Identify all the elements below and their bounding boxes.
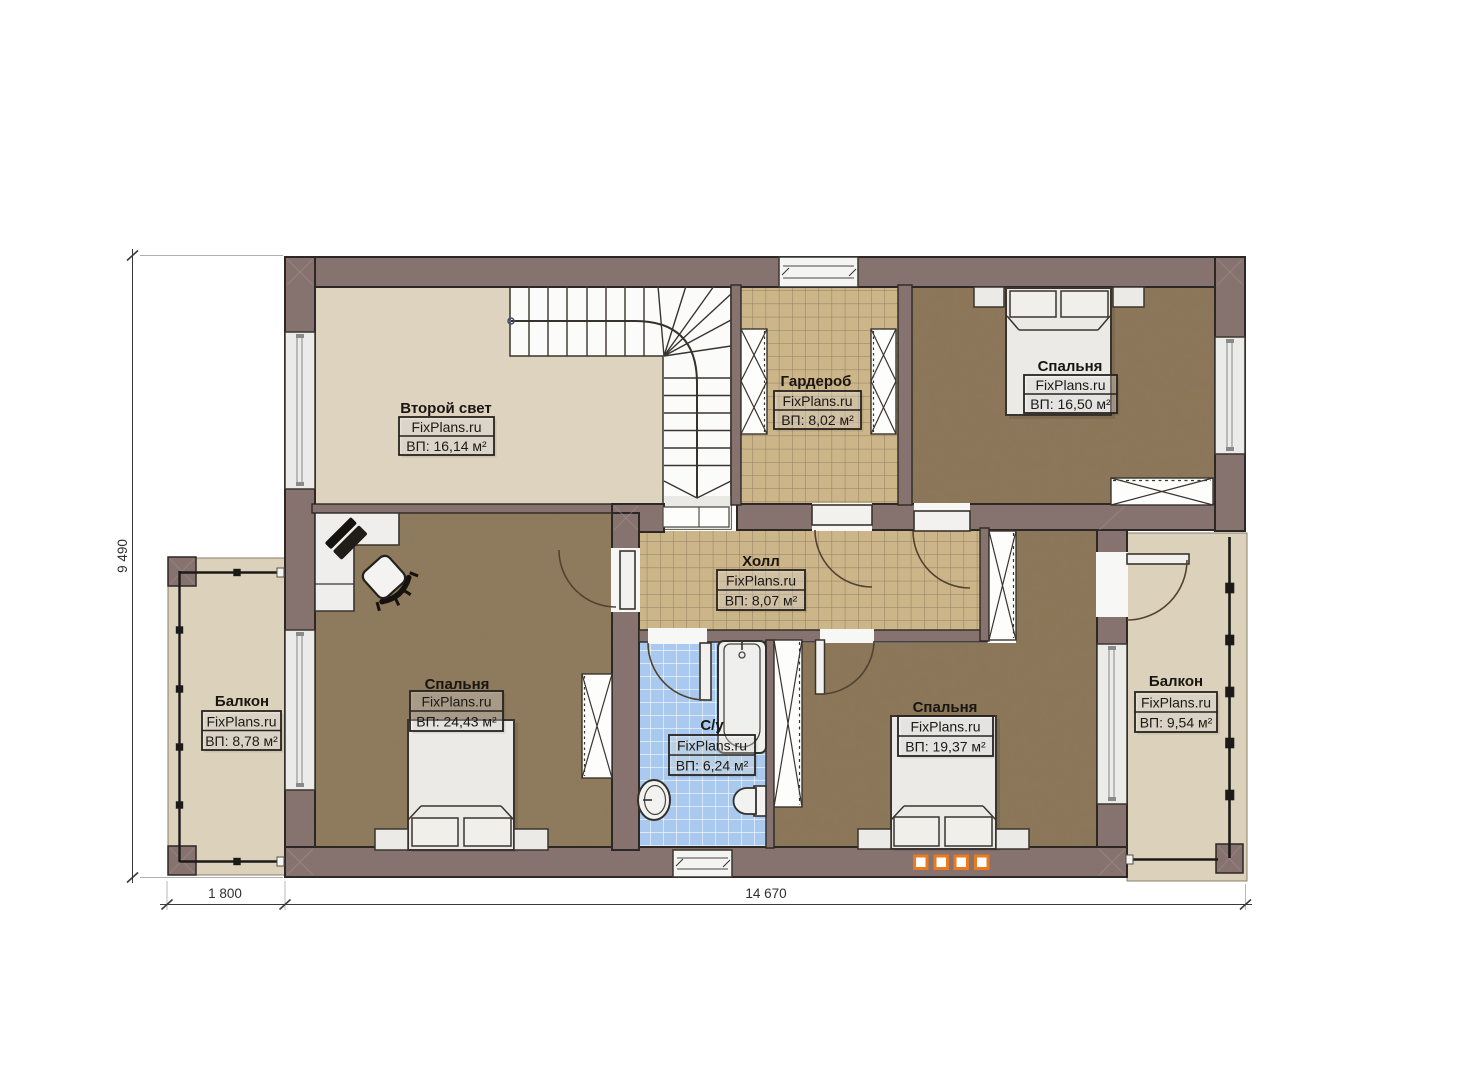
svg-text:1 800: 1 800 (208, 886, 242, 901)
svg-text:ВП: 8,07 м²: ВП: 8,07 м² (725, 593, 798, 609)
svg-text:ВП: 6,24 м²: ВП: 6,24 м² (676, 758, 749, 774)
svg-text:Спальня: Спальня (913, 699, 978, 716)
svg-text:ВП: 9,54 м²: ВП: 9,54 м² (1140, 715, 1213, 731)
svg-text:FixPlans.ru: FixPlans.ru (726, 573, 796, 589)
svg-text:ВП: 24,43 м²: ВП: 24,43 м² (416, 714, 497, 730)
svg-text:FixPlans.ru: FixPlans.ru (421, 694, 491, 710)
svg-text:ВП: 19,37 м²: ВП: 19,37 м² (905, 739, 986, 755)
svg-text:Второй свет: Второй свет (400, 400, 492, 417)
svg-text:Балкон: Балкон (215, 693, 269, 710)
svg-text:FixPlans.ru: FixPlans.ru (206, 713, 276, 729)
svg-text:9 490: 9 490 (115, 539, 130, 573)
svg-text:FixPlans.ru: FixPlans.ru (910, 719, 980, 735)
svg-text:Спальня: Спальня (1038, 358, 1103, 375)
svg-text:FixPlans.ru: FixPlans.ru (677, 738, 747, 754)
svg-text:Холл: Холл (742, 553, 780, 570)
svg-text:ВП: 16,14 м²: ВП: 16,14 м² (406, 438, 487, 454)
svg-text:FixPlans.ru: FixPlans.ru (1035, 377, 1105, 393)
svg-text:С/у: С/у (700, 717, 724, 734)
svg-text:FixPlans.ru: FixPlans.ru (411, 419, 481, 435)
svg-text:Гардероб: Гардероб (781, 373, 852, 390)
svg-text:FixPlans.ru: FixPlans.ru (1141, 695, 1211, 711)
svg-text:ВП: 8,78 м²: ВП: 8,78 м² (205, 733, 278, 749)
svg-text:ВП: 8,02 м²: ВП: 8,02 м² (781, 412, 854, 428)
svg-text:FixPlans.ru: FixPlans.ru (782, 393, 852, 409)
svg-text:ВП: 16,50 м²: ВП: 16,50 м² (1030, 396, 1111, 412)
svg-text:14 670: 14 670 (745, 886, 786, 901)
svg-text:Балкон: Балкон (1149, 673, 1203, 690)
svg-text:Спальня: Спальня (425, 676, 490, 693)
